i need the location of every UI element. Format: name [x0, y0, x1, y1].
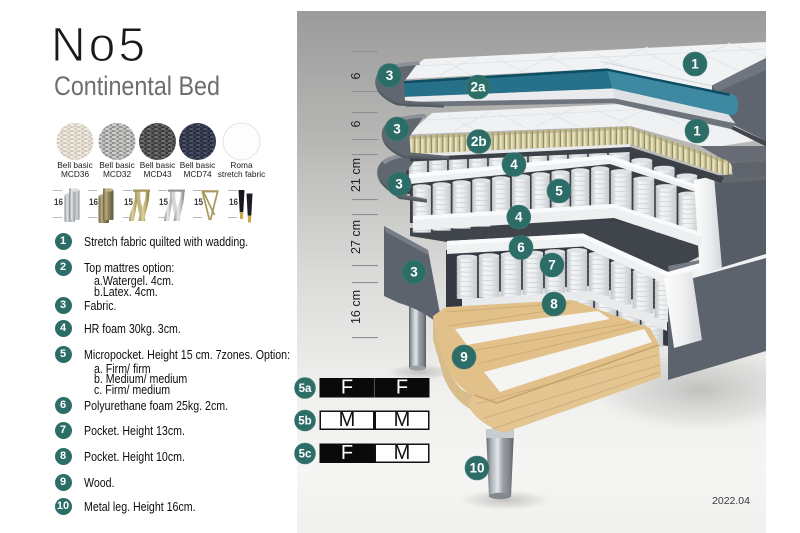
svg-text:2022.04: 2022.04	[712, 495, 750, 507]
svg-text:F: F	[341, 442, 353, 464]
svg-text:16 cm: 16 cm	[349, 290, 363, 324]
svg-text:6: 6	[517, 240, 525, 255]
svg-text:27 cm: 27 cm	[349, 220, 363, 254]
svg-text:F: F	[396, 377, 408, 399]
svg-text:21 cm: 21 cm	[349, 158, 363, 192]
svg-text:3: 3	[393, 122, 401, 137]
svg-text:5a: 5a	[299, 383, 312, 395]
svg-text:M: M	[339, 409, 356, 431]
svg-text:7: 7	[548, 258, 556, 273]
svg-text:M: M	[394, 442, 411, 464]
svg-text:1: 1	[693, 124, 701, 139]
svg-text:5b: 5b	[298, 416, 311, 428]
svg-text:3: 3	[395, 177, 403, 192]
svg-text:5c: 5c	[299, 449, 312, 461]
svg-text:1: 1	[691, 57, 699, 72]
svg-text:3: 3	[386, 68, 394, 83]
svg-text:3: 3	[410, 265, 418, 280]
svg-text:6: 6	[349, 120, 363, 127]
svg-text:4: 4	[510, 157, 518, 172]
svg-text:9: 9	[460, 350, 468, 365]
svg-text:5: 5	[555, 184, 563, 199]
svg-text:6: 6	[349, 72, 363, 79]
svg-text:10: 10	[469, 461, 484, 476]
svg-text:M: M	[394, 409, 411, 431]
svg-text:F: F	[341, 377, 353, 399]
svg-text:8: 8	[550, 297, 558, 312]
svg-text:2a: 2a	[470, 80, 486, 95]
svg-text:4: 4	[515, 210, 523, 225]
svg-text:2b: 2b	[471, 134, 487, 149]
